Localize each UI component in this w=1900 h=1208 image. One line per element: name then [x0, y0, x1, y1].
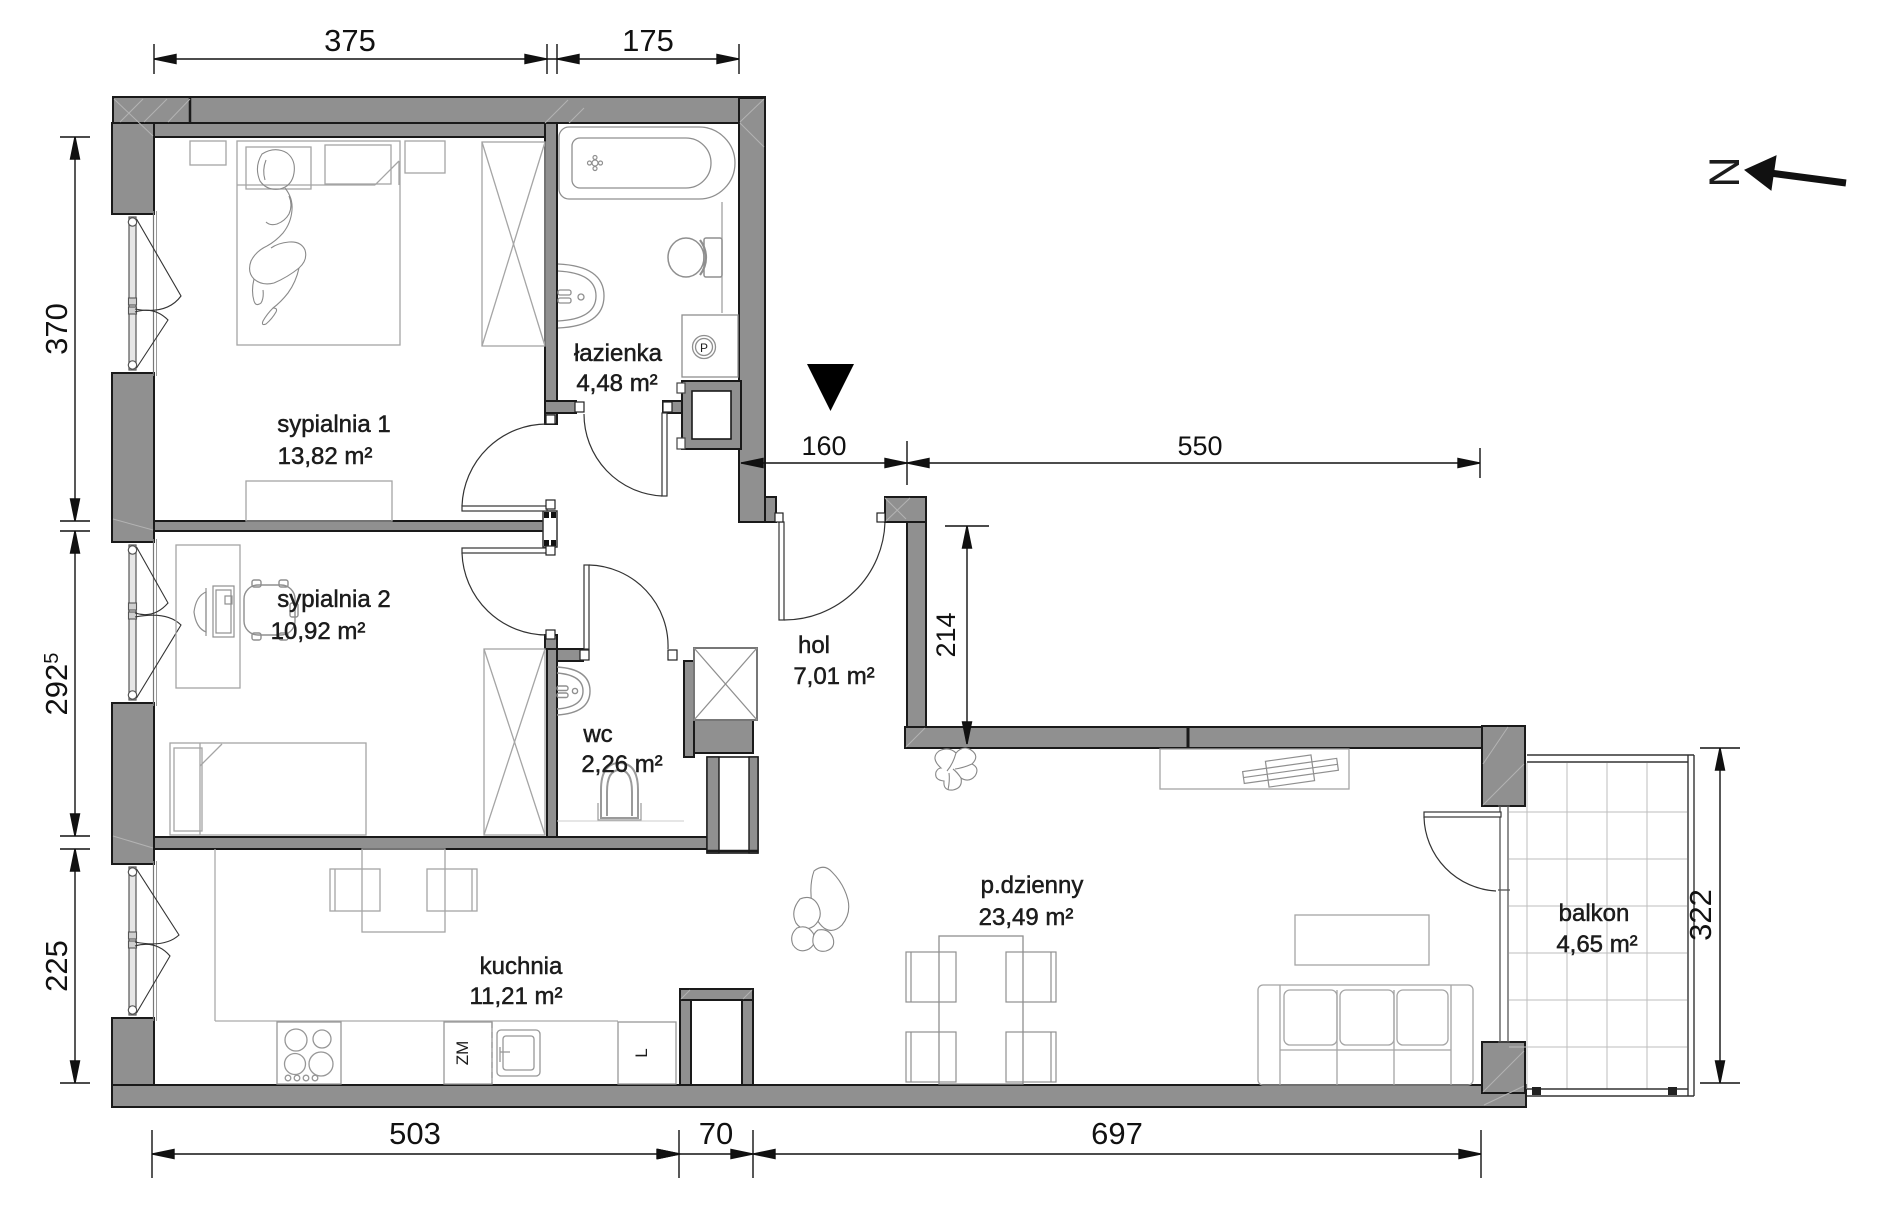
svg-text:N: N — [1700, 156, 1748, 187]
svg-text:503: 503 — [389, 1116, 441, 1151]
svg-text:łazienka: łazienka — [574, 340, 663, 367]
svg-text:214: 214 — [931, 612, 961, 657]
svg-text:P: P — [700, 341, 708, 355]
svg-text:375: 375 — [324, 23, 376, 58]
svg-text:11,21 m²: 11,21 m² — [470, 983, 563, 1010]
svg-text:7,01 m²: 7,01 m² — [793, 663, 874, 690]
svg-text:697: 697 — [1091, 1116, 1143, 1151]
svg-text:370: 370 — [39, 303, 74, 355]
svg-text:160: 160 — [801, 431, 846, 461]
svg-text:4,48 m²: 4,48 m² — [576, 370, 657, 397]
svg-text:2,26 m²: 2,26 m² — [581, 751, 662, 778]
svg-text:ZM: ZM — [453, 1041, 472, 1066]
svg-text:13,82 m²: 13,82 m² — [278, 443, 373, 470]
svg-text:225: 225 — [39, 940, 74, 992]
svg-text:23,49 m²: 23,49 m² — [979, 904, 1074, 931]
svg-text:322: 322 — [1683, 889, 1718, 941]
svg-text:L: L — [632, 1048, 651, 1057]
svg-text:balkon: balkon — [1559, 900, 1630, 927]
svg-text:175: 175 — [622, 23, 674, 58]
svg-text:wc: wc — [582, 721, 612, 748]
svg-text:sypialnia 1: sypialnia 1 — [277, 411, 390, 438]
svg-text:kuchnia: kuchnia — [480, 953, 563, 980]
svg-text:hol: hol — [798, 632, 830, 659]
svg-text:550: 550 — [1177, 431, 1222, 461]
svg-text:4,65 m²: 4,65 m² — [1556, 931, 1637, 958]
svg-text:10,92 m²: 10,92 m² — [271, 618, 366, 645]
svg-text:70: 70 — [699, 1116, 733, 1151]
svg-text:p.dzienny: p.dzienny — [981, 872, 1084, 899]
svg-text:sypialnia 2: sypialnia 2 — [277, 586, 390, 613]
